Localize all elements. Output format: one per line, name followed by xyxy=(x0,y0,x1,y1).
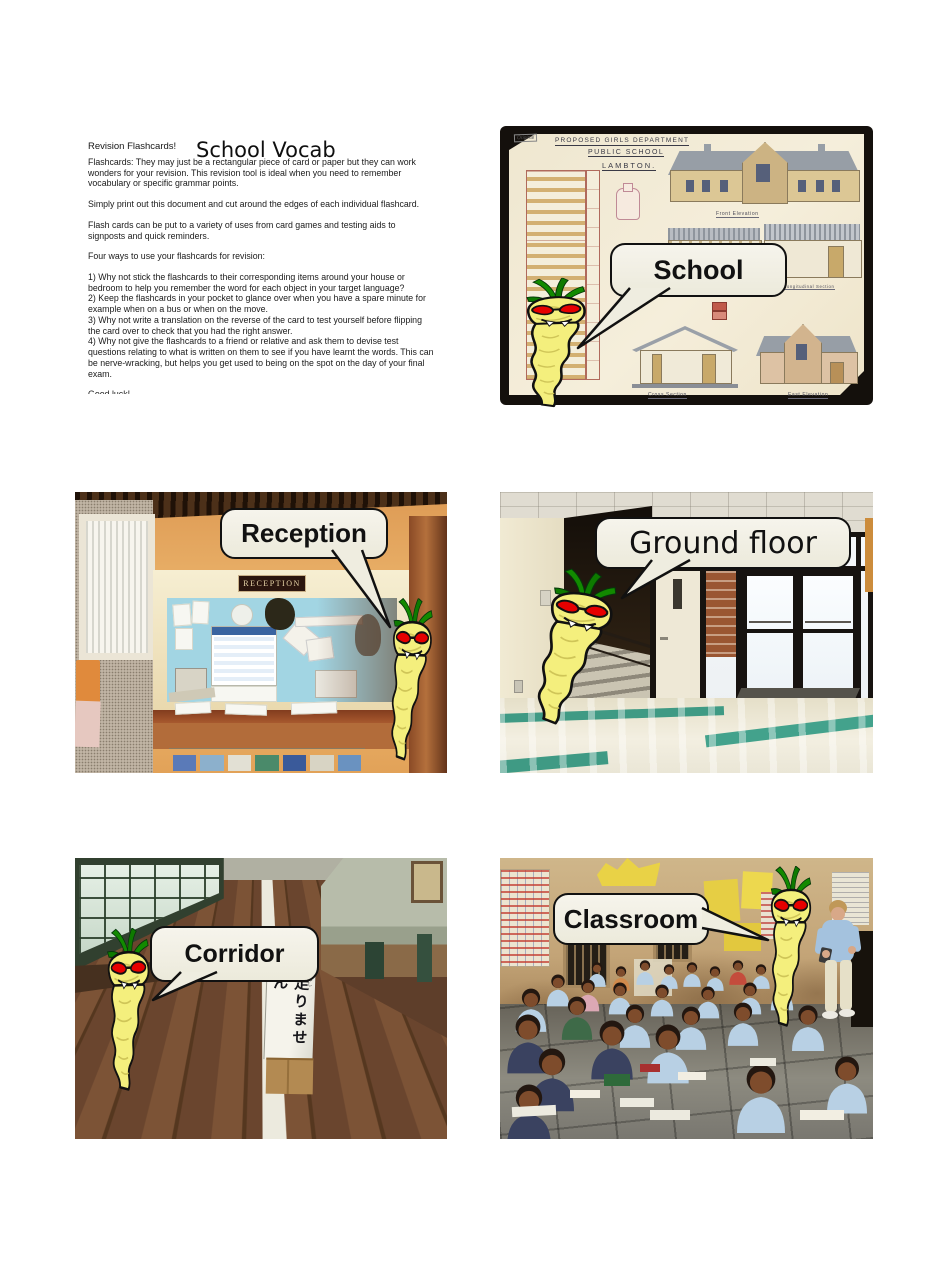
caption: East Elevation xyxy=(788,392,828,399)
paragraph: Simply print out this document and cut a… xyxy=(88,199,435,210)
reception-sign: RECEPTION xyxy=(238,575,306,592)
paragraph: Flashcards: They may just be a rectangul… xyxy=(88,157,435,189)
picture-frame xyxy=(411,861,443,904)
entrance-door xyxy=(742,571,798,699)
cardboard-stand xyxy=(266,1057,313,1094)
flashcard-reception: RECEPTION Reception xyxy=(75,492,447,773)
document-page: Revision Flashcards! School Vocab Flashc… xyxy=(0,0,950,1267)
no-running-sign: 走りません はし xyxy=(263,970,315,1062)
paragraph: 1) Why not stick the flashcards to their… xyxy=(88,272,435,379)
drawing-note: Original xyxy=(514,134,537,143)
entrance-door xyxy=(798,571,858,699)
speech-bubble-tail xyxy=(145,962,230,1010)
speech-bubble-tail xyxy=(692,898,777,946)
ventilation-detail xyxy=(712,302,727,311)
speech-bubble-tail xyxy=(570,274,685,354)
flashcard-classroom: Classroom xyxy=(500,858,873,1139)
paragraph: Four ways to use your flashcards for rev… xyxy=(88,251,435,262)
parsnip-character xyxy=(762,866,820,1028)
door xyxy=(365,942,384,979)
brick-pillar xyxy=(706,571,736,657)
speech-bubble-tail xyxy=(612,550,702,608)
wall-accent xyxy=(865,518,873,592)
door xyxy=(417,934,432,982)
notice xyxy=(75,701,101,748)
clipped-line: Good luck! xyxy=(88,389,435,394)
drawing-title-line2: Public School xyxy=(588,149,664,157)
drawing-title-line3: Lambton. xyxy=(602,161,656,171)
caption: Front Elevation xyxy=(716,211,759,218)
caption: Cross Section xyxy=(648,392,687,399)
clock xyxy=(231,604,253,626)
flashcard-school: Original Proposed Girls Department Publi… xyxy=(500,126,873,405)
doc-subtitle: Revision Flashcards! xyxy=(88,141,176,152)
speech-bubble-tail xyxy=(320,542,400,637)
plant xyxy=(265,598,295,630)
side-window xyxy=(79,514,155,660)
flashcard-ground-floor: Ground floor xyxy=(500,492,873,773)
ventilation-detail xyxy=(712,311,727,320)
drawing-stamp xyxy=(616,188,640,220)
east-elevation xyxy=(752,324,862,388)
brochure-rack xyxy=(169,748,365,773)
flashcard-corridor: 走りません はし Corridor xyxy=(75,858,447,1139)
paragraph: Flash cards can be put to a variety of u… xyxy=(88,220,435,241)
flashcard-label: Classroom xyxy=(564,904,698,935)
intro-text: Flashcards: They may just be a rectangul… xyxy=(88,157,435,394)
calendar xyxy=(211,626,277,686)
speech-bubble: Classroom xyxy=(553,893,709,945)
front-elevation xyxy=(668,142,860,206)
teacher xyxy=(814,900,861,1019)
